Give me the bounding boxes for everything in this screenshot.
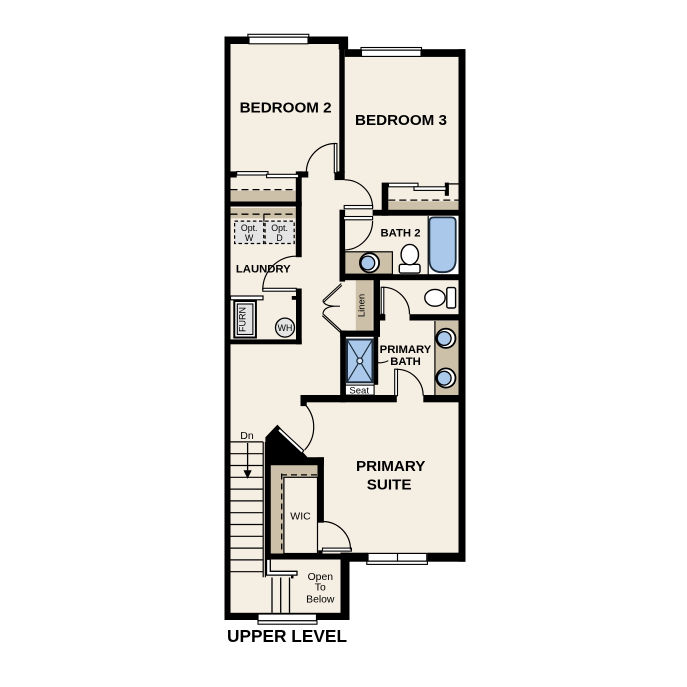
svg-text:Opt.: Opt. [271,223,288,233]
svg-text:D: D [276,233,282,243]
svg-text:BATH 2: BATH 2 [381,228,421,240]
svg-text:W: W [245,233,254,243]
svg-text:SUITE: SUITE [367,477,412,494]
svg-text:UPPER LEVEL: UPPER LEVEL [227,626,347,646]
svg-text:Linen: Linen [356,294,367,317]
svg-text:To: To [315,582,326,593]
svg-text:Dn: Dn [240,430,254,442]
svg-text:BEDROOM 2: BEDROOM 2 [240,99,332,116]
svg-text:Seat: Seat [349,385,369,396]
svg-text:WH: WH [278,323,293,333]
svg-text:Open: Open [308,572,334,583]
svg-text:LAUNDRY: LAUNDRY [236,264,291,276]
svg-text:Below: Below [306,595,335,606]
svg-text:PRIMARY: PRIMARY [356,458,425,475]
svg-text:FURN: FURN [237,307,247,332]
svg-text:BATH: BATH [390,356,421,368]
svg-text:PRIMARY: PRIMARY [380,344,432,356]
svg-text:BEDROOM 3: BEDROOM 3 [355,112,447,129]
svg-text:Opt.: Opt. [241,223,258,233]
svg-text:WIC: WIC [290,511,311,523]
